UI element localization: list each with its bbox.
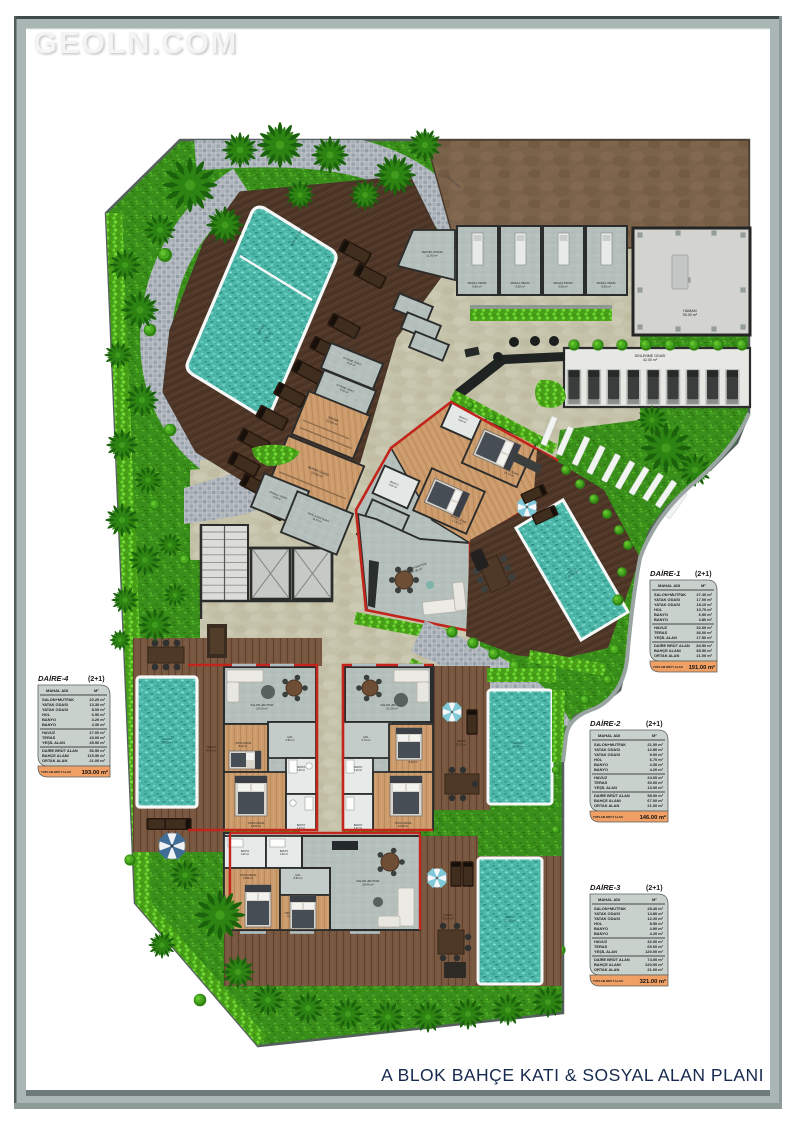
svg-text:11.00 m²: 11.00 m² xyxy=(426,254,438,258)
svg-text:DAİRE-3: DAİRE-3 xyxy=(590,883,621,892)
svg-text:M²: M² xyxy=(701,583,706,588)
svg-text:21.00 m²: 21.00 m² xyxy=(89,758,105,763)
svg-text:BANYO: BANYO xyxy=(594,931,608,936)
svg-text:TOPLAM BRÜT ALAN: TOPLAM BRÜT ALAN xyxy=(41,770,71,774)
svg-text:3.20 m²: 3.20 m² xyxy=(241,853,249,856)
svg-text:191.00 m²: 191.00 m² xyxy=(689,664,715,671)
svg-text:43.00 m²: 43.00 m² xyxy=(206,748,217,752)
svg-text:BANYO: BANYO xyxy=(42,722,56,727)
svg-text:321.00 m²: 321.00 m² xyxy=(640,978,666,985)
svg-text:(2+1): (2+1) xyxy=(646,885,663,892)
svg-text:12.80 m²: 12.80 m² xyxy=(398,824,408,828)
svg-text:146.00 m²: 146.00 m² xyxy=(640,814,666,821)
svg-text:MAHAL ADI: MAHAL ADI xyxy=(658,583,680,588)
svg-text:193.00 m²: 193.00 m² xyxy=(82,769,108,776)
svg-text:TOPLAM BRÜT ALAN: TOPLAM BRÜT ALAN xyxy=(593,979,623,983)
svg-text:GEOLN.COM: GEOLN.COM xyxy=(33,25,238,60)
svg-text:YEŞİL ALAN: YEŞİL ALAN xyxy=(594,949,617,954)
svg-text:A BLOK BAHÇE KATI & SOSYAL ALA: A BLOK BAHÇE KATI & SOSYAL ALAN PLANI xyxy=(381,1065,764,1085)
svg-text:13.30 m²: 13.30 m² xyxy=(251,824,261,828)
svg-text:120.00 m²: 120.00 m² xyxy=(645,949,663,954)
svg-text:42.00 m²: 42.00 m² xyxy=(643,358,658,362)
svg-text:TOPLAM BRÜT ALAN: TOPLAM BRÜT ALAN xyxy=(653,665,683,669)
svg-text:9.00 m²: 9.00 m² xyxy=(409,761,418,764)
svg-text:4.10 m²: 4.10 m² xyxy=(354,769,362,772)
svg-text:MAHAL ADI: MAHAL ADI xyxy=(598,733,620,738)
svg-text:13.00 m²: 13.00 m² xyxy=(647,785,663,790)
svg-text:8.50 m²: 8.50 m² xyxy=(294,876,303,880)
svg-text:65.00 m²: 65.00 m² xyxy=(443,916,454,920)
svg-text:6.50 m²: 6.50 m² xyxy=(286,738,295,742)
svg-text:24.00 m²: 24.00 m² xyxy=(512,745,524,749)
svg-text:(2+1): (2+1) xyxy=(88,676,105,683)
svg-text:ORTAK ALAN: ORTAK ALAN xyxy=(42,758,67,763)
svg-text:8.00 m²: 8.00 m² xyxy=(239,745,248,748)
svg-text:30.00 m²: 30.00 m² xyxy=(456,742,467,746)
svg-text:MAHAL ADI: MAHAL ADI xyxy=(46,688,68,693)
svg-text:DAİRE-1: DAİRE-1 xyxy=(650,569,680,578)
svg-text:DAİRE-4: DAİRE-4 xyxy=(38,674,69,683)
svg-text:21.00 m²: 21.00 m² xyxy=(647,803,663,808)
svg-text:9.50 m²: 9.50 m² xyxy=(558,284,568,288)
svg-text:4.30 m²: 4.30 m² xyxy=(92,722,106,727)
svg-text:21.00 m²: 21.00 m² xyxy=(696,653,712,658)
svg-text:M²: M² xyxy=(652,897,657,902)
svg-text:(2+1): (2+1) xyxy=(646,721,663,728)
svg-text:4.90 m²: 4.90 m² xyxy=(280,853,288,856)
svg-text:TOPLAM BRÜT ALAN: TOPLAM BRÜT ALAN xyxy=(593,815,623,819)
svg-text:9.50 m²: 9.50 m² xyxy=(472,284,482,288)
svg-text:(2+1): (2+1) xyxy=(695,571,712,578)
svg-text:BANYO: BANYO xyxy=(594,767,608,772)
svg-text:28.40 m²: 28.40 m² xyxy=(362,883,373,887)
svg-text:DAİRE-2: DAİRE-2 xyxy=(590,719,621,728)
svg-text:YEŞİL ALAN: YEŞİL ALAN xyxy=(654,635,677,640)
svg-text:50.00 m²: 50.00 m² xyxy=(683,313,698,317)
svg-text:21.00 m²: 21.00 m² xyxy=(647,967,663,972)
svg-text:4.20 m²: 4.20 m² xyxy=(650,931,664,936)
svg-text:ORTAK ALAN: ORTAK ALAN xyxy=(594,967,619,972)
svg-text:9.50 m²: 9.50 m² xyxy=(601,284,611,288)
svg-text:M²: M² xyxy=(94,688,99,693)
svg-text:BANYO: BANYO xyxy=(654,617,668,622)
svg-text:M²: M² xyxy=(652,733,657,738)
svg-text:YEŞİL ALAN: YEŞİL ALAN xyxy=(594,785,617,790)
svg-text:9.50 m²: 9.50 m² xyxy=(515,284,525,288)
svg-text:17.50 m²: 17.50 m² xyxy=(696,635,712,640)
svg-text:14.80 m²: 14.80 m² xyxy=(243,876,253,880)
svg-text:32.00 m²: 32.00 m² xyxy=(504,919,516,923)
svg-text:21.00 m²: 21.00 m² xyxy=(386,707,397,711)
svg-text:4.80 m²: 4.80 m² xyxy=(699,617,713,622)
svg-text:YEŞİL ALAN: YEŞİL ALAN xyxy=(42,740,65,745)
svg-text:45.50 m²: 45.50 m² xyxy=(89,740,105,745)
svg-text:MAHAL ADI: MAHAL ADI xyxy=(598,897,620,902)
svg-text:ORTAK ALAN: ORTAK ALAN xyxy=(594,803,619,808)
svg-text:27.00 m²: 27.00 m² xyxy=(161,741,173,745)
svg-text:20.20 m²: 20.20 m² xyxy=(256,707,267,711)
svg-text:ORTAK ALAN: ORTAK ALAN xyxy=(654,653,679,658)
svg-text:6.70 m²: 6.70 m² xyxy=(362,738,371,742)
svg-text:4.20 m²: 4.20 m² xyxy=(650,767,664,772)
svg-text:4.30 m²: 4.30 m² xyxy=(297,769,305,772)
